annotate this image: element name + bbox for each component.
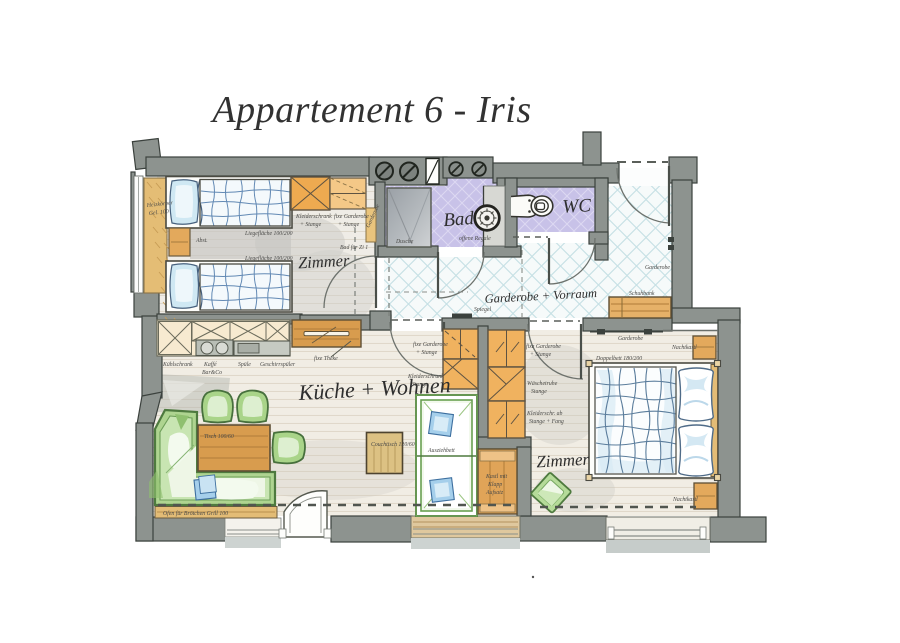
svg-text:Zimmer: Zimmer [298, 251, 351, 273]
svg-text:Appartement 6 - Iris: Appartement 6 - Iris [209, 89, 531, 131]
svg-text:Doppelbett 180/200: Doppelbett 180/200 [595, 356, 642, 362]
svg-text:Abst.: Abst. [195, 238, 208, 244]
svg-text:Kleiderschrank: Kleiderschrank [407, 374, 444, 380]
svg-text:Kastl mit: Kastl mit [485, 474, 507, 480]
svg-text:Garderobe: Garderobe [618, 336, 643, 342]
svg-text:Stange: Stange [531, 389, 547, 395]
svg-text:+ Stange: + Stange [338, 222, 360, 228]
svg-text:Schuhbank: Schuhbank [629, 291, 655, 297]
svg-text:Ausziehbett: Ausziehbett [427, 448, 455, 454]
svg-text:offene Regale: offene Regale [459, 235, 491, 242]
svg-text:Stange: Stange [412, 382, 428, 388]
svg-text:Stange + Fang: Stange + Fang [529, 419, 564, 425]
svg-text:Nachtkastl: Nachtkastl [672, 497, 698, 503]
svg-text:Wäschetruhe: Wäschetruhe [527, 381, 558, 387]
svg-text:Zimmer: Zimmer [536, 450, 590, 472]
svg-text:fixe Garderobe: fixe Garderobe [526, 343, 561, 350]
svg-text:Spiegel: Spiegel [474, 307, 491, 313]
svg-text:Spüle: Spüle [238, 362, 251, 368]
svg-text:Tisch 100/60: Tisch 100/60 [204, 434, 234, 440]
svg-text:Kleiderschr. ab: Kleiderschr. ab [526, 411, 563, 417]
svg-text:Bad für Zi 1: Bad für Zi 1 [340, 244, 368, 251]
svg-text:fixe Theke: fixe Theke [314, 355, 338, 362]
svg-text:Ofen für Brötchen Grill 100: Ofen für Brötchen Grill 100 [163, 510, 228, 517]
svg-text:Kaffé: Kaffé [203, 361, 217, 368]
svg-text:Liegefläche 100/200: Liegefläche 100/200 [244, 230, 293, 237]
svg-text:Aufsatz: Aufsatz [485, 489, 504, 496]
svg-text:Dusche: Dusche [395, 239, 414, 245]
svg-text:Geschirrspüler: Geschirrspüler [260, 362, 296, 368]
svg-text:Kühlschrank: Kühlschrank [162, 362, 193, 368]
svg-text:+ Stange: + Stange [300, 222, 322, 228]
svg-text:Kleiderschrank: Kleiderschrank [295, 214, 332, 220]
svg-text:fixe Garderobe: fixe Garderobe [413, 341, 448, 348]
svg-text:Garderobe: Garderobe [645, 265, 670, 271]
svg-text:fixe Garderobe: fixe Garderobe [334, 213, 369, 220]
svg-text:Bad: Bad [443, 208, 475, 231]
svg-text:Couchtisch 120/60: Couchtisch 120/60 [371, 442, 415, 448]
svg-text:+ Stange: + Stange [416, 350, 438, 356]
svg-text:Liegefläche 100/200: Liegefläche 100/200 [244, 255, 293, 262]
svg-text:Bar&Co: Bar&Co [202, 370, 222, 376]
svg-text:+ Stange: + Stange [530, 352, 552, 358]
svg-text:WC: WC [562, 195, 592, 217]
svg-text:Nachtkastl: Nachtkastl [671, 345, 697, 351]
svg-text:Klapp: Klapp [487, 482, 502, 488]
